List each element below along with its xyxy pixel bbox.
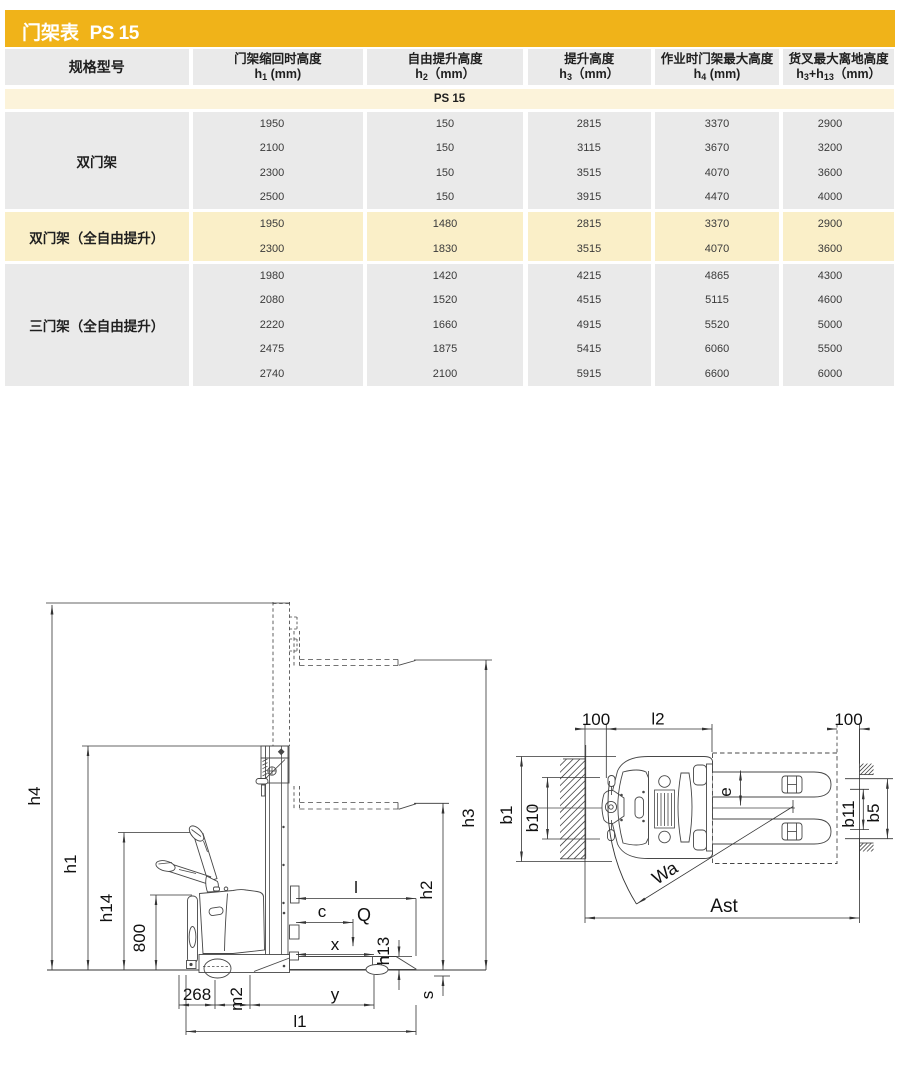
svg-text:h13: h13 (374, 937, 393, 965)
svg-text:m2: m2 (227, 987, 246, 1011)
svg-text:c: c (318, 902, 327, 921)
svg-text:l: l (354, 878, 358, 897)
svg-text:x: x (331, 935, 340, 954)
svg-text:b1: b1 (497, 806, 516, 825)
svg-text:h2: h2 (417, 881, 436, 900)
svg-text:b11: b11 (839, 800, 858, 827)
svg-text:h4: h4 (25, 787, 44, 806)
svg-text:Q: Q (357, 905, 371, 925)
svg-text:100: 100 (582, 710, 610, 729)
svg-text:b5: b5 (864, 804, 883, 823)
svg-text:Wa: Wa (648, 857, 682, 888)
svg-text:268: 268 (183, 985, 211, 1004)
svg-text:e: e (716, 787, 735, 796)
svg-text:y: y (331, 985, 340, 1004)
svg-text:h14: h14 (97, 894, 116, 922)
svg-text:100: 100 (834, 710, 862, 729)
svg-text:h1: h1 (61, 855, 80, 874)
svg-text:800: 800 (130, 924, 149, 952)
svg-text:s: s (418, 991, 437, 1000)
svg-text:l1: l1 (293, 1012, 306, 1031)
svg-text:l2: l2 (651, 710, 664, 729)
svg-text:Ast: Ast (710, 896, 738, 917)
svg-text:h3: h3 (459, 809, 478, 828)
